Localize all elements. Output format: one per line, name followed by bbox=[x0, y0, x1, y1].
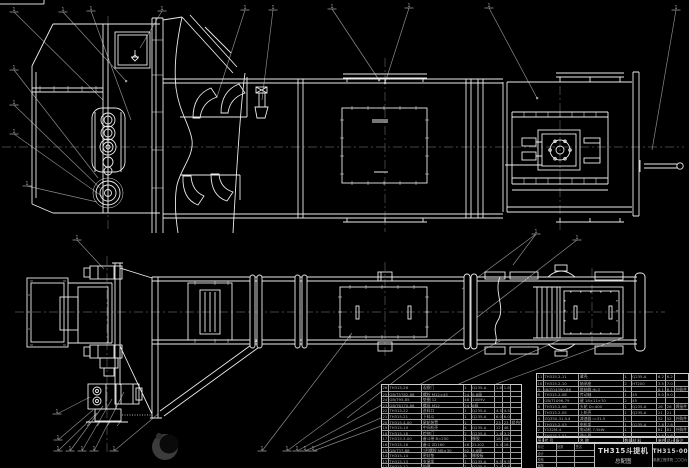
table-row: 22TH315-22进料口1Q235-A4.54.5 bbox=[382, 407, 521, 413]
table-cell: TH315.3-00 bbox=[389, 436, 423, 441]
table-cell: 6.2 bbox=[657, 374, 666, 380]
table-row: 19TH315-19中间机壳4Q235-A1248 bbox=[382, 424, 521, 430]
table-cell: 外购件 bbox=[675, 427, 688, 432]
table-cell: TH315-18 bbox=[389, 431, 423, 436]
table-cell: 2.4 bbox=[503, 464, 511, 468]
table-cell: 10 bbox=[537, 381, 544, 386]
table-cell: 18.4 bbox=[503, 442, 511, 447]
table-cell: 18 bbox=[503, 436, 511, 441]
table-cell: 0.4 bbox=[495, 442, 503, 447]
table-cell: 23 bbox=[495, 420, 503, 425]
table-cell: 23 bbox=[503, 420, 511, 425]
table-cell: 4.5 bbox=[495, 408, 503, 413]
table-cell: 处数 bbox=[557, 444, 576, 450]
table-row: 11TH315.2-11罩壳1Q235-A6.26.2 bbox=[537, 374, 688, 380]
title-block: 标记处数签名设计校核审核 TH315斗提机 总配图 TH315-00 机械工程学… bbox=[536, 443, 689, 468]
table-cell: 下料斗 bbox=[422, 414, 463, 419]
head-flange bbox=[152, 18, 163, 233]
table-cell: 4 bbox=[464, 425, 472, 430]
table-cell: Q235-A bbox=[472, 408, 496, 413]
table-cell bbox=[511, 459, 521, 464]
table-row: 24GB/T95-85垫圈 1248100HV bbox=[382, 396, 521, 402]
inlet-panel-side bbox=[560, 287, 623, 338]
table-cell: TH315-12 bbox=[389, 464, 423, 468]
table-cell bbox=[675, 381, 688, 386]
table-cell bbox=[632, 416, 658, 421]
table-cell: 19 bbox=[382, 425, 389, 430]
table-cell: 11 bbox=[537, 374, 544, 380]
duct-flanges bbox=[250, 274, 477, 349]
table-cell: 52 bbox=[657, 416, 666, 421]
table-cell: 外购件 bbox=[675, 387, 688, 392]
table-cell: 21 bbox=[382, 414, 389, 419]
table-cell: 3.2 bbox=[503, 431, 511, 436]
table-cell: 2 bbox=[464, 431, 472, 436]
table-cell: 46 bbox=[464, 442, 472, 447]
table-cell: 7 bbox=[537, 398, 544, 403]
table-cell: 8.8级 bbox=[472, 392, 496, 397]
table-cell: 12 bbox=[495, 425, 503, 430]
table-cell: 1 bbox=[464, 414, 472, 419]
table-cell: 13 bbox=[382, 459, 389, 464]
table-row: 23GB/T6170-86螺母 M12248级 bbox=[382, 402, 521, 408]
table-cell: TH315-16 bbox=[389, 442, 423, 447]
table-cell: 7.8 bbox=[657, 422, 666, 427]
table-row: 26TH315-26观察门1Q235-A1.81.8 bbox=[382, 385, 521, 391]
table-cell: 24 bbox=[464, 403, 472, 408]
table-cell: 键 18×11×70 bbox=[579, 398, 623, 403]
table-cell: 81 bbox=[657, 427, 666, 432]
table-cell: 24 bbox=[464, 392, 472, 397]
table-cell: 设计 bbox=[537, 451, 557, 456]
inspection-panel bbox=[340, 106, 429, 185]
table-cell bbox=[675, 422, 688, 427]
leader-end-markers bbox=[125, 79, 538, 99]
table-cell: Q235-A bbox=[632, 422, 658, 427]
table-cell: Q235-A bbox=[472, 431, 496, 436]
table-cell: 8.1 bbox=[657, 387, 666, 392]
table-cell bbox=[632, 387, 658, 392]
table-cell: 26 bbox=[382, 385, 389, 391]
table-cell: 罩壳 bbox=[579, 374, 623, 380]
table-row: 14TH315-14密封垫8橡胶板 bbox=[382, 452, 521, 458]
table-cell bbox=[557, 451, 576, 456]
table-cell: 9.0 bbox=[657, 392, 666, 397]
table-cell: 26 bbox=[657, 404, 666, 409]
table-cell: Q235-A bbox=[472, 459, 496, 464]
table-cell bbox=[495, 448, 503, 453]
table-cell: 2 bbox=[624, 381, 632, 386]
table-row: 13TH315-13支承架1Q235-A9.59.5 bbox=[382, 458, 521, 464]
table-cell: 进料口 bbox=[422, 408, 463, 413]
table-cell: 9.5 bbox=[495, 459, 503, 464]
table-cell: 6 bbox=[537, 404, 544, 409]
table-cell bbox=[503, 392, 511, 397]
table-row: 10TH315.2-10轴承座2HT2003.57.0 bbox=[537, 380, 688, 386]
table-cell bbox=[511, 436, 521, 441]
table-cell: 橡胶板 bbox=[472, 453, 496, 458]
table-cell bbox=[511, 425, 521, 430]
table-cell: TH315-14 bbox=[389, 453, 423, 458]
mid-panel-side bbox=[338, 272, 429, 351]
table-cell bbox=[503, 448, 511, 453]
table-row: 16TH315-16畚斗 ZD16046ZL1020.418.4 bbox=[382, 441, 521, 447]
table-cell: TH315-26 bbox=[389, 385, 423, 391]
table-cell: Q235-A bbox=[632, 374, 658, 380]
table-cell: 4 bbox=[537, 416, 544, 421]
table-cell: Q235-A bbox=[632, 410, 658, 415]
backstop-rod bbox=[633, 72, 683, 216]
table-cell: 14 bbox=[382, 453, 389, 458]
table-cell bbox=[675, 392, 688, 397]
table-cell: 螺栓 M12×45 bbox=[422, 392, 463, 397]
table-cell: 9.0 bbox=[666, 392, 675, 397]
table-cell: 检修门 bbox=[422, 431, 463, 436]
table-cell: Q235-A bbox=[472, 464, 496, 468]
table-cell: 畚斗带 B=250 bbox=[422, 436, 463, 441]
table-cell: 外购件 bbox=[675, 416, 688, 421]
table-cell: 组合件 bbox=[511, 420, 521, 425]
table-cell: 8 bbox=[464, 453, 472, 458]
table-cell: Q235-A bbox=[472, 414, 496, 419]
table-cell: 21 bbox=[657, 410, 666, 415]
table-row: 15GB/T37-88T形螺栓 M8×30924.8级 bbox=[382, 447, 521, 453]
table-cell: HT200 bbox=[632, 381, 658, 386]
table-cell: GB/T5782-86 bbox=[389, 392, 423, 397]
table-cell: 校核 bbox=[537, 457, 557, 462]
table-row: 12TH315-12护罩1Q235-A2.42.4 bbox=[382, 463, 521, 468]
table-cell: 中间机壳 bbox=[422, 425, 463, 430]
table-cell: 1.6 bbox=[495, 431, 503, 436]
table-cell: Q235-A bbox=[472, 385, 496, 391]
table-cell: 电动机 7.5kW bbox=[579, 427, 623, 432]
table-cell: 减速器 i=31.5 bbox=[579, 416, 623, 421]
table-cell: TH315.2-08 bbox=[544, 392, 580, 397]
table-cell bbox=[511, 385, 521, 391]
table-row: 17TH315.3-00畚斗带 B=2501橡胶1818 bbox=[382, 435, 521, 441]
table-cell bbox=[557, 463, 576, 468]
table-cell: T形螺栓 M8×30 bbox=[422, 448, 463, 453]
table-cell: 1 bbox=[464, 459, 472, 464]
table-cell bbox=[511, 403, 521, 408]
table-cell: 头轮 D=400 bbox=[579, 404, 623, 409]
table-cell: 25 bbox=[382, 392, 389, 397]
casing-body bbox=[163, 73, 624, 222]
table-cell bbox=[511, 448, 521, 453]
table-cell: 5 bbox=[537, 410, 544, 415]
table-cell bbox=[666, 398, 675, 403]
table-row: 8TH315.2-08传动轴1459.09.0 bbox=[537, 391, 688, 397]
table-cell: 16 bbox=[382, 442, 389, 447]
table-cell: JB/ZQ4390-86 bbox=[544, 387, 580, 392]
table-row: 校核 bbox=[537, 456, 594, 462]
table-cell: 1 bbox=[624, 416, 632, 421]
table-row: 25GB/T5782-86螺栓 M12×45248.8级 bbox=[382, 391, 521, 397]
table-cell: 传动轴 bbox=[579, 392, 623, 397]
table-cell bbox=[511, 414, 521, 419]
table-cell bbox=[503, 403, 511, 408]
number-cell: TH315-00 机械工程学院 二〇〇六 bbox=[653, 444, 688, 467]
table-cell bbox=[495, 453, 503, 458]
table-cell: 9.5 bbox=[503, 459, 511, 464]
organization-label: 机械工程学院 二〇〇六 bbox=[653, 457, 687, 462]
table-cell: 2 bbox=[624, 398, 632, 403]
table-cell: 1 bbox=[624, 427, 632, 432]
table-cell: 1 bbox=[624, 374, 632, 380]
table-cell: ZQ350-31.5-Ⅱ bbox=[544, 416, 580, 421]
table-cell bbox=[511, 431, 521, 436]
table-row: 审核 bbox=[537, 462, 594, 468]
table-cell bbox=[575, 451, 594, 456]
table-cell: 23 bbox=[382, 403, 389, 408]
table-cell: 4.8级 bbox=[472, 448, 496, 453]
frame-corner bbox=[0, 0, 44, 4]
table-row: 18TH315-18检修门2Q235-A1.63.2 bbox=[382, 430, 521, 436]
table-cell: Q235-A bbox=[472, 425, 496, 430]
table-cell: 6.0 bbox=[495, 414, 503, 419]
table-cell: TH315-22 bbox=[389, 408, 423, 413]
boot-hopper-support bbox=[120, 268, 262, 418]
table-cell: 26 bbox=[666, 404, 675, 409]
table-cell: 7.0 bbox=[666, 381, 675, 386]
table-cell: 上机壳 bbox=[579, 410, 623, 415]
table-cell: 9 bbox=[537, 387, 544, 392]
table-cell: 尾轮装置 bbox=[422, 420, 463, 425]
head-side bbox=[27, 278, 112, 347]
table-cell: 18 bbox=[382, 431, 389, 436]
bucket-bolt bbox=[255, 87, 268, 118]
table-cell: 标记 bbox=[537, 444, 557, 450]
table-cell: ZL102 bbox=[472, 442, 496, 447]
table-cell: 48 bbox=[503, 425, 511, 430]
table-cell: 48 bbox=[464, 397, 472, 402]
break-line bbox=[495, 277, 501, 344]
table-cell: 52 bbox=[666, 416, 675, 421]
table-cell: 45 bbox=[632, 392, 658, 397]
table-cell: 1 bbox=[464, 436, 472, 441]
table-cell: TH315-19 bbox=[389, 425, 423, 430]
table-cell: 20 bbox=[382, 420, 389, 425]
table-cell bbox=[675, 398, 688, 403]
table-cell: GB/T1096-79 bbox=[544, 398, 580, 403]
expansion-joint bbox=[533, 287, 560, 338]
table-cell bbox=[495, 403, 503, 408]
table-cell: GB/T95-85 bbox=[389, 397, 423, 402]
cad-drawing-canvas: 11111111111111111111111111111 26TH315-26… bbox=[0, 0, 689, 468]
table-cell: 4.5 bbox=[503, 408, 511, 413]
table-cell bbox=[675, 374, 688, 380]
table-cell: 联轴器 HL3 bbox=[579, 387, 623, 392]
table-row: 3TH315.2-03电机架1Q235-A7.87.8 bbox=[537, 421, 688, 427]
stamp-smudge bbox=[152, 433, 179, 460]
table-cell: 7.8 bbox=[666, 422, 675, 427]
drawing-subtitle: 总配图 bbox=[615, 457, 632, 465]
drawing-title: TH315斗提机 bbox=[598, 446, 648, 456]
table-cell: TH315.2-03 bbox=[544, 422, 580, 427]
table-cell bbox=[657, 398, 666, 403]
table-row: 6TH315.2-06头轮 D=4001Q235-A2626焊接件 bbox=[537, 403, 688, 409]
table-cell: 1 bbox=[624, 404, 632, 409]
table-cell: 45 bbox=[632, 398, 658, 403]
table-row: 2Y132M-4电动机 7.5kW18181外购件 bbox=[537, 426, 688, 432]
table-cell: 3.5 bbox=[657, 381, 666, 386]
table-cell: 24 bbox=[382, 397, 389, 402]
table-cell: 6.2 bbox=[666, 374, 675, 380]
table-cell bbox=[472, 420, 496, 425]
table-cell bbox=[575, 463, 594, 468]
table-row: 标记处数签名 bbox=[537, 444, 594, 450]
table-cell: TH315.2-05 bbox=[544, 410, 580, 415]
table-cell: 支承架 bbox=[422, 459, 463, 464]
table-cell: Y132M-4 bbox=[544, 427, 580, 432]
table-cell bbox=[511, 408, 521, 413]
table-cell bbox=[503, 453, 511, 458]
table-cell: TH315-21 bbox=[389, 414, 423, 419]
table-row: 20TH315.4-00尾轮装置12323组合件 bbox=[382, 419, 521, 425]
table-cell bbox=[632, 427, 658, 432]
bearing-blocks bbox=[84, 263, 123, 385]
table-row: 7GB/T1096-79键 18×11×70245 bbox=[537, 397, 688, 403]
table-cell: 1 bbox=[464, 408, 472, 413]
table-cell: 焊接件 bbox=[675, 404, 688, 409]
table-cell bbox=[511, 464, 521, 468]
head-housing bbox=[32, 24, 160, 213]
table-cell bbox=[511, 397, 521, 402]
table-cell: GB/T37-88 bbox=[389, 448, 423, 453]
table-cell: TH315-13 bbox=[389, 459, 423, 464]
table-cell: 8.1 bbox=[666, 387, 675, 392]
table-cell: 轴承座 bbox=[579, 381, 623, 386]
table-cell: 15 bbox=[382, 448, 389, 453]
table-cell: 6.0 bbox=[503, 414, 511, 419]
table-cell: 8级 bbox=[472, 403, 496, 408]
table-cell: TH315.2-06 bbox=[544, 404, 580, 409]
table-cell: Q235-A bbox=[632, 404, 658, 409]
table-row: 21TH315-21下料斗1Q235-A6.06.0 bbox=[382, 413, 521, 419]
table-cell: 1 bbox=[464, 385, 472, 391]
table-cell: 18 bbox=[495, 436, 503, 441]
table-cell bbox=[495, 392, 503, 397]
table-cell: 2 bbox=[537, 427, 544, 432]
table-cell: 22 bbox=[382, 408, 389, 413]
table-cell: 1.8 bbox=[495, 385, 503, 391]
table-row: 5TH315.2-05上机壳1Q235-A2121 bbox=[537, 409, 688, 415]
table-cell: 8 bbox=[537, 392, 544, 397]
revision-table: 标记处数签名设计校核审核 bbox=[537, 444, 595, 467]
table-cell: TH315.2-10 bbox=[544, 381, 580, 386]
table-cell bbox=[495, 397, 503, 402]
table-cell: 1 bbox=[624, 422, 632, 427]
table-row: 设计 bbox=[537, 450, 594, 456]
table-cell: 17 bbox=[382, 436, 389, 441]
table-cell: 92 bbox=[464, 448, 472, 453]
table-cell: 1 bbox=[464, 464, 472, 468]
top-access-box bbox=[115, 32, 150, 68]
drawing-number: TH315-00 bbox=[653, 449, 688, 455]
table-cell: 垫圈 12 bbox=[422, 397, 463, 402]
table-cell bbox=[575, 457, 594, 462]
table-cell bbox=[511, 453, 521, 458]
table-cell: TH315.2-11 bbox=[544, 374, 580, 380]
table-cell bbox=[503, 397, 511, 402]
table-cell: 81 bbox=[666, 427, 675, 432]
table-cell: 护罩 bbox=[422, 464, 463, 468]
table-cell: 观察门 bbox=[422, 385, 463, 391]
parts-list-left: 26TH315-26观察门1Q235-A1.81.825GB/T5782-86螺… bbox=[381, 384, 522, 468]
table-cell: 橡胶 bbox=[472, 436, 496, 441]
table-cell: 畚斗 ZD160 bbox=[422, 442, 463, 447]
table-cell: 螺母 M12 bbox=[422, 403, 463, 408]
parts-list-right: 11TH315.2-11罩壳1Q235-A6.26.210TH315.2-10轴… bbox=[536, 373, 689, 437]
table-cell: 电机架 bbox=[579, 422, 623, 427]
hood-and-chute bbox=[163, 15, 247, 233]
table-cell: 密封垫 bbox=[422, 453, 463, 458]
table-cell: 审核 bbox=[537, 463, 557, 468]
table-cell: GB/T6170-86 bbox=[389, 403, 423, 408]
table-cell bbox=[511, 392, 521, 397]
table-cell: 1 bbox=[624, 387, 632, 392]
table-row: 4ZQ350-31.5-Ⅱ减速器 i=31.515252外购件 bbox=[537, 415, 688, 421]
table-cell: 1 bbox=[624, 410, 632, 415]
table-cell: TH315.4-00 bbox=[389, 420, 423, 425]
table-cell: 21 bbox=[666, 410, 675, 415]
table-cell: 1 bbox=[624, 392, 632, 397]
table-cell bbox=[675, 410, 688, 415]
table-cell bbox=[557, 457, 576, 462]
title-cell: TH315斗提机 总配图 bbox=[595, 444, 653, 467]
table-cell: 100HV bbox=[472, 397, 496, 402]
table-row: 9JB/ZQ4390-86联轴器 HL318.18.1外购件 bbox=[537, 386, 688, 392]
table-cell bbox=[511, 442, 521, 447]
table-cell: 签名 bbox=[575, 444, 594, 450]
table-cell: 12 bbox=[382, 464, 389, 468]
table-cell: 1.8 bbox=[503, 385, 511, 391]
table-cell: 3 bbox=[537, 422, 544, 427]
table-cell: 1 bbox=[464, 420, 472, 425]
table-cell: 2.4 bbox=[495, 464, 503, 468]
